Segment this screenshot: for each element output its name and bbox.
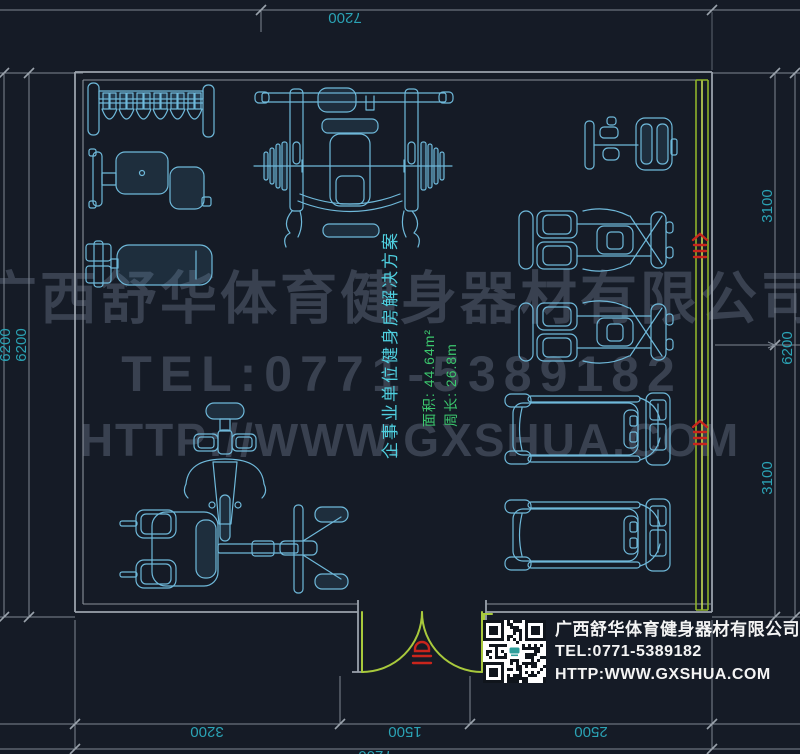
dim-bottom-3: 2500 bbox=[574, 723, 607, 740]
info-url: HTTP:WWW.GXSHUA.COM bbox=[555, 663, 800, 686]
company-info-box: 广西舒华体育健身器材有限公司 TEL:0771-5389182 HTTP:WWW… bbox=[483, 612, 798, 700]
dim-bottom-total: 7200 bbox=[358, 747, 391, 754]
info-tel: TEL:0771-5389182 bbox=[555, 641, 800, 663]
watermark-url: HTTP://WWW.GXSHUA.COM bbox=[80, 414, 740, 466]
dim-bottom-1: 3200 bbox=[190, 723, 223, 740]
plan-area: 面积: 44.64m² bbox=[421, 329, 437, 427]
qr-code bbox=[483, 620, 546, 683]
dim-left-inner: 6200 bbox=[13, 328, 30, 361]
dim-right-top: 3100 bbox=[759, 189, 776, 222]
info-company: 广西舒华体育健身器材有限公司 bbox=[555, 619, 800, 641]
watermark-tel: TEL:0771-5389182 bbox=[121, 346, 683, 402]
plan-perimeter: 周长: 26.8m bbox=[443, 343, 459, 427]
dim-bottom-2: 1500 bbox=[388, 723, 421, 740]
cad-canvas: 广西舒华体育健身器材有限公司 TEL:0771-5389182 HTTP://W… bbox=[0, 0, 800, 754]
dim-left-outer: 6200 bbox=[0, 328, 14, 361]
qr-logo bbox=[510, 648, 520, 654]
dim-right-total: 6200 bbox=[779, 331, 796, 364]
dim-top: 7200 bbox=[328, 9, 361, 26]
plan-title: 企事业单位健身房解决方案 bbox=[381, 231, 400, 459]
dim-right-bottom: 3100 bbox=[759, 461, 776, 494]
